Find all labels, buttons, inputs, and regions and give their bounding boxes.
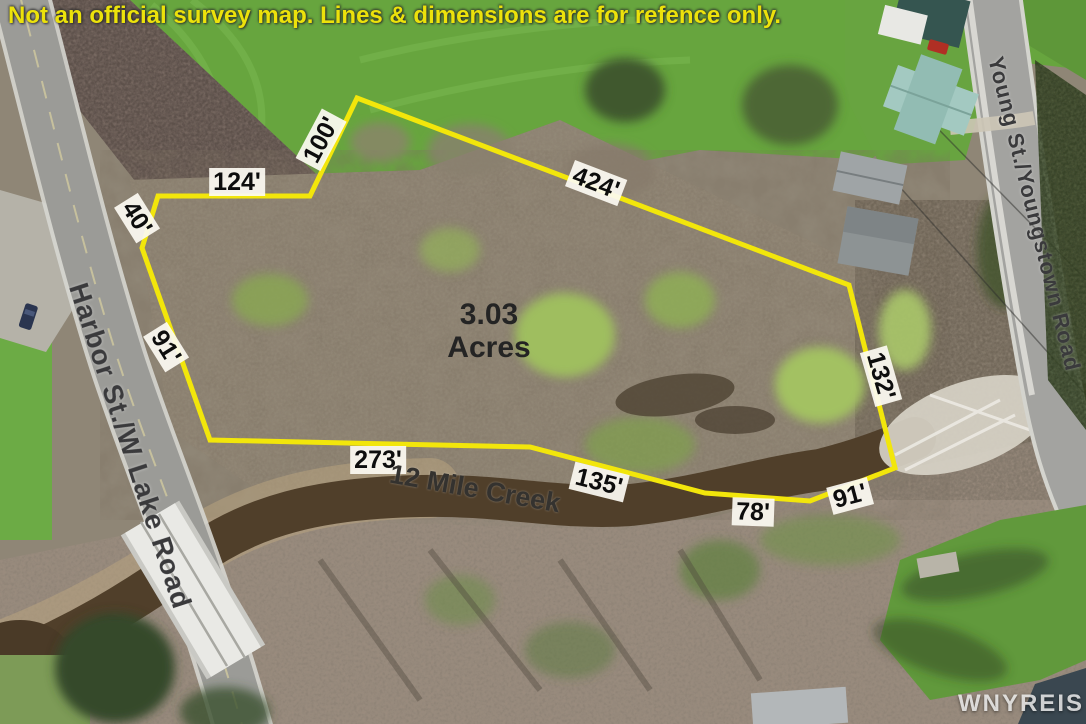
parcel-area-label: 3.03 Acres	[447, 298, 530, 364]
wnyreis-watermark: WNYREIS	[958, 690, 1084, 718]
dimension-label-78ft: 78'	[732, 497, 775, 526]
disclaimer-text: Not an official survey map. Lines & dime…	[8, 2, 781, 30]
aerial-survey-map: Not an official survey map. Lines & dime…	[0, 0, 1086, 724]
parcel-area-value: 3.03	[447, 298, 530, 331]
parcel-area-unit: Acres	[447, 331, 530, 364]
dimension-label-124ft: 124'	[209, 168, 265, 196]
